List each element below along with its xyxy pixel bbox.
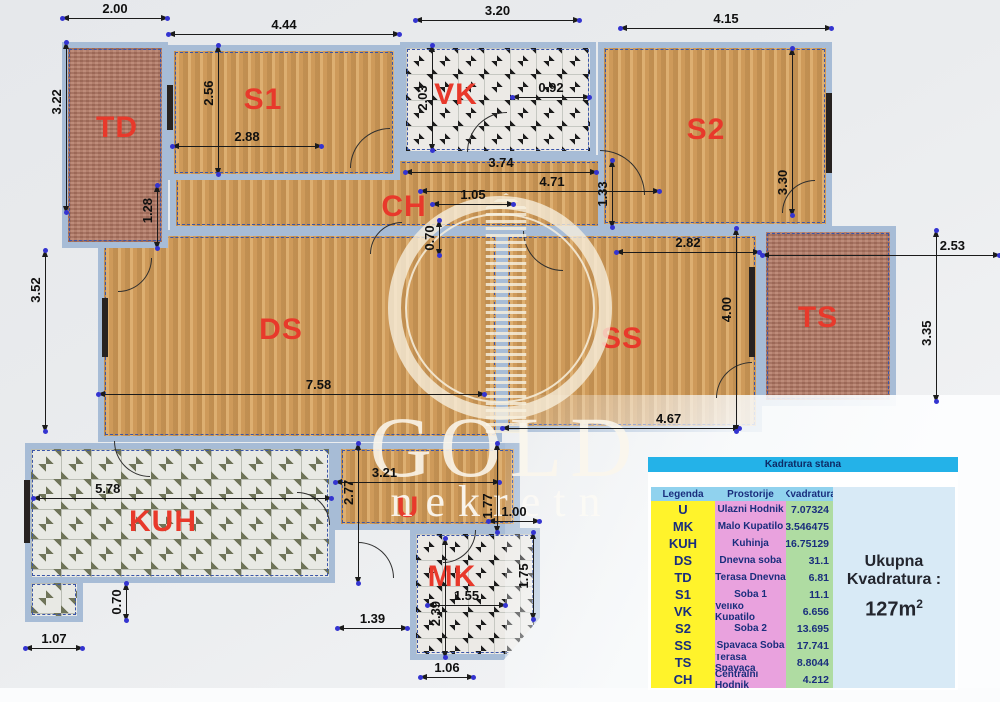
dimension-line xyxy=(432,204,514,205)
endpoint-dot xyxy=(124,581,129,586)
area-value-cell: 13.695 xyxy=(786,620,833,637)
background-fade-bottom xyxy=(0,688,1000,702)
endpoint-dot xyxy=(734,226,739,231)
endpoint-dot xyxy=(430,148,435,153)
dimension-label: 5.78 xyxy=(95,481,120,496)
endpoint-dot xyxy=(430,202,435,207)
endpoint-dot xyxy=(510,95,515,100)
dimension-line xyxy=(62,18,168,19)
room-name-cell: Terasa Dnevna xyxy=(715,569,786,586)
room-label-ss: SS xyxy=(601,322,643,356)
area-value-cell: 11.1 xyxy=(786,586,833,603)
window-fixture xyxy=(102,298,108,357)
room-name-cell: Terasa Spavaca xyxy=(715,654,786,671)
endpoint-dot xyxy=(43,248,48,253)
dimension-line xyxy=(98,394,485,395)
dimension-line xyxy=(616,252,760,253)
dimension-label: 0.70 xyxy=(109,589,124,614)
window-fixture xyxy=(826,93,832,173)
dimension-line xyxy=(792,48,793,216)
dimension-label: 1.39 xyxy=(360,611,385,626)
total-area-value: 127m2 xyxy=(865,597,923,622)
room-label-u: U xyxy=(397,491,420,525)
dimension-line xyxy=(762,255,1000,256)
endpoint-dot xyxy=(497,480,502,485)
room-name-cell: Malo Kupatilo xyxy=(715,518,786,535)
endpoint-dot xyxy=(760,253,765,258)
room-name-cell: Veliko Kupatilo xyxy=(715,603,786,620)
room-label-s1: S1 xyxy=(244,83,283,117)
endpoint-dot xyxy=(23,646,28,651)
dimension-label: 1.75 xyxy=(516,563,531,588)
dimension-line xyxy=(445,538,446,658)
dimension-label: 1.06 xyxy=(434,660,459,675)
endpoint-dot xyxy=(418,675,423,680)
endpoint-dot xyxy=(403,170,408,175)
room-label-kuh: KUH xyxy=(129,505,197,539)
legend-col-header: Kvadratura xyxy=(786,487,833,501)
endpoint-dot xyxy=(430,43,435,48)
room-name-cell: Dnevna soba xyxy=(715,552,786,569)
endpoint-dot xyxy=(495,530,500,535)
endpoint-dot xyxy=(614,250,619,255)
dimension-line xyxy=(157,185,158,249)
dimension-line xyxy=(533,532,534,620)
dimension-label: 2.82 xyxy=(675,235,700,250)
endpoint-dot xyxy=(790,213,795,218)
dimension-label: 3.35 xyxy=(919,321,934,346)
room-name-cell: Ulazni Hodnik xyxy=(715,501,786,518)
dimension-label: 0.92 xyxy=(538,80,563,95)
dimension-label: 3.30 xyxy=(775,170,790,195)
area-value-cell: 31.1 xyxy=(786,552,833,569)
legend-code-cell: KUH xyxy=(651,535,715,552)
endpoint-dot xyxy=(405,626,410,631)
endpoint-dot xyxy=(503,603,508,608)
dimension-label: 1.77 xyxy=(480,493,495,518)
dimension-label: 3.52 xyxy=(28,277,43,302)
dimension-label: 2.77 xyxy=(341,480,356,505)
dimension-label: 1.28 xyxy=(140,198,155,223)
dimension-label: 4.71 xyxy=(539,174,564,189)
endpoint-dot xyxy=(587,95,592,100)
dimension-label: 1.07 xyxy=(41,631,66,646)
dimension-label: 2.00 xyxy=(102,1,127,16)
endpoint-dot xyxy=(657,189,662,194)
room-name-cell: Kuhinja xyxy=(715,535,786,552)
endpoint-dot xyxy=(356,441,361,446)
area-value-cell: 17.741 xyxy=(786,637,833,654)
endpoint-dot xyxy=(471,675,476,680)
floorplan-canvas: CHS1VKS2DSSSTSTDKUHUMK 2.00 4.44 3.20 4.… xyxy=(0,0,1000,702)
endpoint-dot xyxy=(413,18,418,23)
endpoint-dot xyxy=(437,253,442,258)
endpoint-dot xyxy=(790,46,795,51)
room-kuh2 xyxy=(25,577,83,622)
window-fixture xyxy=(749,267,755,357)
endpoint-dot xyxy=(610,225,615,230)
dimension-line xyxy=(45,250,46,432)
legend-code-cell: CH xyxy=(651,671,715,688)
dimension-line xyxy=(335,482,500,483)
endpoint-dot xyxy=(333,480,338,485)
window-fixture xyxy=(167,85,173,130)
endpoint-dot xyxy=(335,626,340,631)
dimension-line xyxy=(420,191,660,192)
legend-code-cell: DS xyxy=(651,552,715,569)
endpoint-dot xyxy=(511,202,516,207)
dimension-label: 4.15 xyxy=(713,11,738,26)
dimension-line xyxy=(420,677,474,678)
endpoint-dot xyxy=(216,172,221,177)
dimension-label: 2.56 xyxy=(201,80,216,105)
total-area-cell: Ukupna Kvadratura : 127m2 xyxy=(833,487,955,688)
legend-code-cell: TS xyxy=(651,654,715,671)
dimension-line xyxy=(172,146,322,147)
room-label-td: TD xyxy=(96,111,138,145)
endpoint-dot xyxy=(531,617,536,622)
dimension-label: 7.58 xyxy=(306,377,331,392)
endpoint-dot xyxy=(734,429,739,434)
total-label-line1: Ukupna xyxy=(865,553,924,571)
endpoint-dot xyxy=(443,536,448,541)
dimension-label: 1.05 xyxy=(460,187,485,202)
endpoint-dot xyxy=(124,618,129,623)
endpoint-dot xyxy=(486,519,491,524)
room-label-ch: CH xyxy=(381,190,426,224)
door-arc-icon xyxy=(358,542,394,578)
dimension-label: 3.22 xyxy=(49,89,64,114)
dimension-label: 1.00 xyxy=(501,504,526,519)
room-label-vk: VK xyxy=(434,78,478,112)
dimension-label: 3.21 xyxy=(372,465,397,480)
endpoint-dot xyxy=(594,170,599,175)
dimension-line xyxy=(168,34,400,35)
legend-panel: Kadratura stana Legenda Prostorije Kvadr… xyxy=(648,457,958,690)
dimension-line xyxy=(432,45,433,151)
dimension-label: 3.74 xyxy=(488,155,513,170)
room-name-cell: Spavaca Soba xyxy=(715,637,786,654)
dimension-label: 2.53 xyxy=(940,238,965,253)
dimension-label: 1.33 xyxy=(595,181,610,206)
endpoint-dot xyxy=(443,655,448,660)
area-value-cell: 7.07324 xyxy=(786,501,833,518)
dimension-line xyxy=(512,97,590,98)
legend-col-header: Legenda xyxy=(651,487,715,501)
dimension-label: 4.00 xyxy=(719,297,734,322)
endpoint-dot xyxy=(934,399,939,404)
endpoint-dot xyxy=(64,40,69,45)
endpoint-dot xyxy=(80,646,85,651)
room-label-ds: DS xyxy=(259,313,303,347)
dimension-line xyxy=(497,443,498,533)
endpoint-dot xyxy=(437,218,442,223)
endpoint-dot xyxy=(155,246,160,251)
legend-title: Kadratura stana xyxy=(648,457,958,472)
dimension-line xyxy=(405,172,597,173)
endpoint-dot xyxy=(482,392,487,397)
legend-code-cell: VK xyxy=(651,603,715,620)
endpoint-dot xyxy=(165,16,170,21)
legend-col-header: Prostorije xyxy=(715,487,786,501)
dimension-line xyxy=(620,28,832,29)
endpoint-dot xyxy=(577,18,582,23)
dimension-line xyxy=(736,228,737,432)
area-value-cell: 8.8044 xyxy=(786,654,833,671)
area-value-cell: 6.656 xyxy=(786,603,833,620)
area-value-cell: 6.81 xyxy=(786,569,833,586)
legend-code-cell: TD xyxy=(651,569,715,586)
legend-code-cell: S2 xyxy=(651,620,715,637)
legend-code-cell: SS xyxy=(651,637,715,654)
total-label-line2: Kvadratura : xyxy=(847,571,941,589)
endpoint-dot xyxy=(155,183,160,188)
dimension-line xyxy=(218,45,219,175)
dimension-line xyxy=(66,42,67,213)
room-name-cell: Centralni Hodnik xyxy=(715,671,786,688)
dimension-line xyxy=(502,428,740,429)
endpoint-dot xyxy=(610,158,615,163)
endpoint-dot xyxy=(64,210,69,215)
endpoint-dot xyxy=(537,519,542,524)
dimension-line xyxy=(415,20,580,21)
room-label-ts: TS xyxy=(798,301,838,335)
dimension-line xyxy=(936,230,937,402)
endpoint-dot xyxy=(618,26,623,31)
legend-code-cell: MK xyxy=(651,518,715,535)
area-value-cell: 3.546475 xyxy=(786,518,833,535)
area-value-cell: 4.212 xyxy=(786,671,833,688)
legend-code-cell: U xyxy=(651,501,715,518)
endpoint-dot xyxy=(531,530,536,535)
endpoint-dot xyxy=(31,496,36,501)
area-value-cell: 16.75129 xyxy=(786,535,833,552)
endpoint-dot xyxy=(934,228,939,233)
dimension-line xyxy=(358,443,359,584)
dimension-label: 4.67 xyxy=(656,411,681,426)
room-name-cell: Soba 1 xyxy=(715,586,786,603)
dimension-line xyxy=(33,498,332,499)
dimension-line xyxy=(612,160,613,228)
endpoint-dot xyxy=(60,16,65,21)
endpoint-dot xyxy=(166,32,171,37)
dimension-label: 3.20 xyxy=(485,3,510,18)
dimension-label: 2.03 xyxy=(415,85,430,110)
dimension-label: 2.39 xyxy=(428,601,443,626)
endpoint-dot xyxy=(96,392,101,397)
legend-code-cell: S1 xyxy=(651,586,715,603)
endpoint-dot xyxy=(397,32,402,37)
endpoint-dot xyxy=(329,496,334,501)
room-label-s2: S2 xyxy=(687,113,726,147)
window-fixture xyxy=(24,480,30,543)
dimension-label: 2.88 xyxy=(234,129,259,144)
endpoint-dot xyxy=(500,426,505,431)
dimension-line xyxy=(337,628,408,629)
room-name-cell: Soba 2 xyxy=(715,620,786,637)
endpoint-dot xyxy=(356,581,361,586)
dimension-label: 4.44 xyxy=(271,17,296,32)
dimension-line xyxy=(25,648,83,649)
dimension-label: 0.70 xyxy=(422,225,437,250)
endpoint-dot xyxy=(216,43,221,48)
endpoint-dot xyxy=(829,26,834,31)
endpoint-dot xyxy=(418,189,423,194)
endpoint-dot xyxy=(43,429,48,434)
endpoint-dot xyxy=(170,144,175,149)
dimension-label: 1.55 xyxy=(454,588,479,603)
endpoint-dot xyxy=(495,441,500,446)
endpoint-dot xyxy=(319,144,324,149)
legend-table: Legenda Prostorije Kvadratura Ukupna Kva… xyxy=(651,487,955,688)
